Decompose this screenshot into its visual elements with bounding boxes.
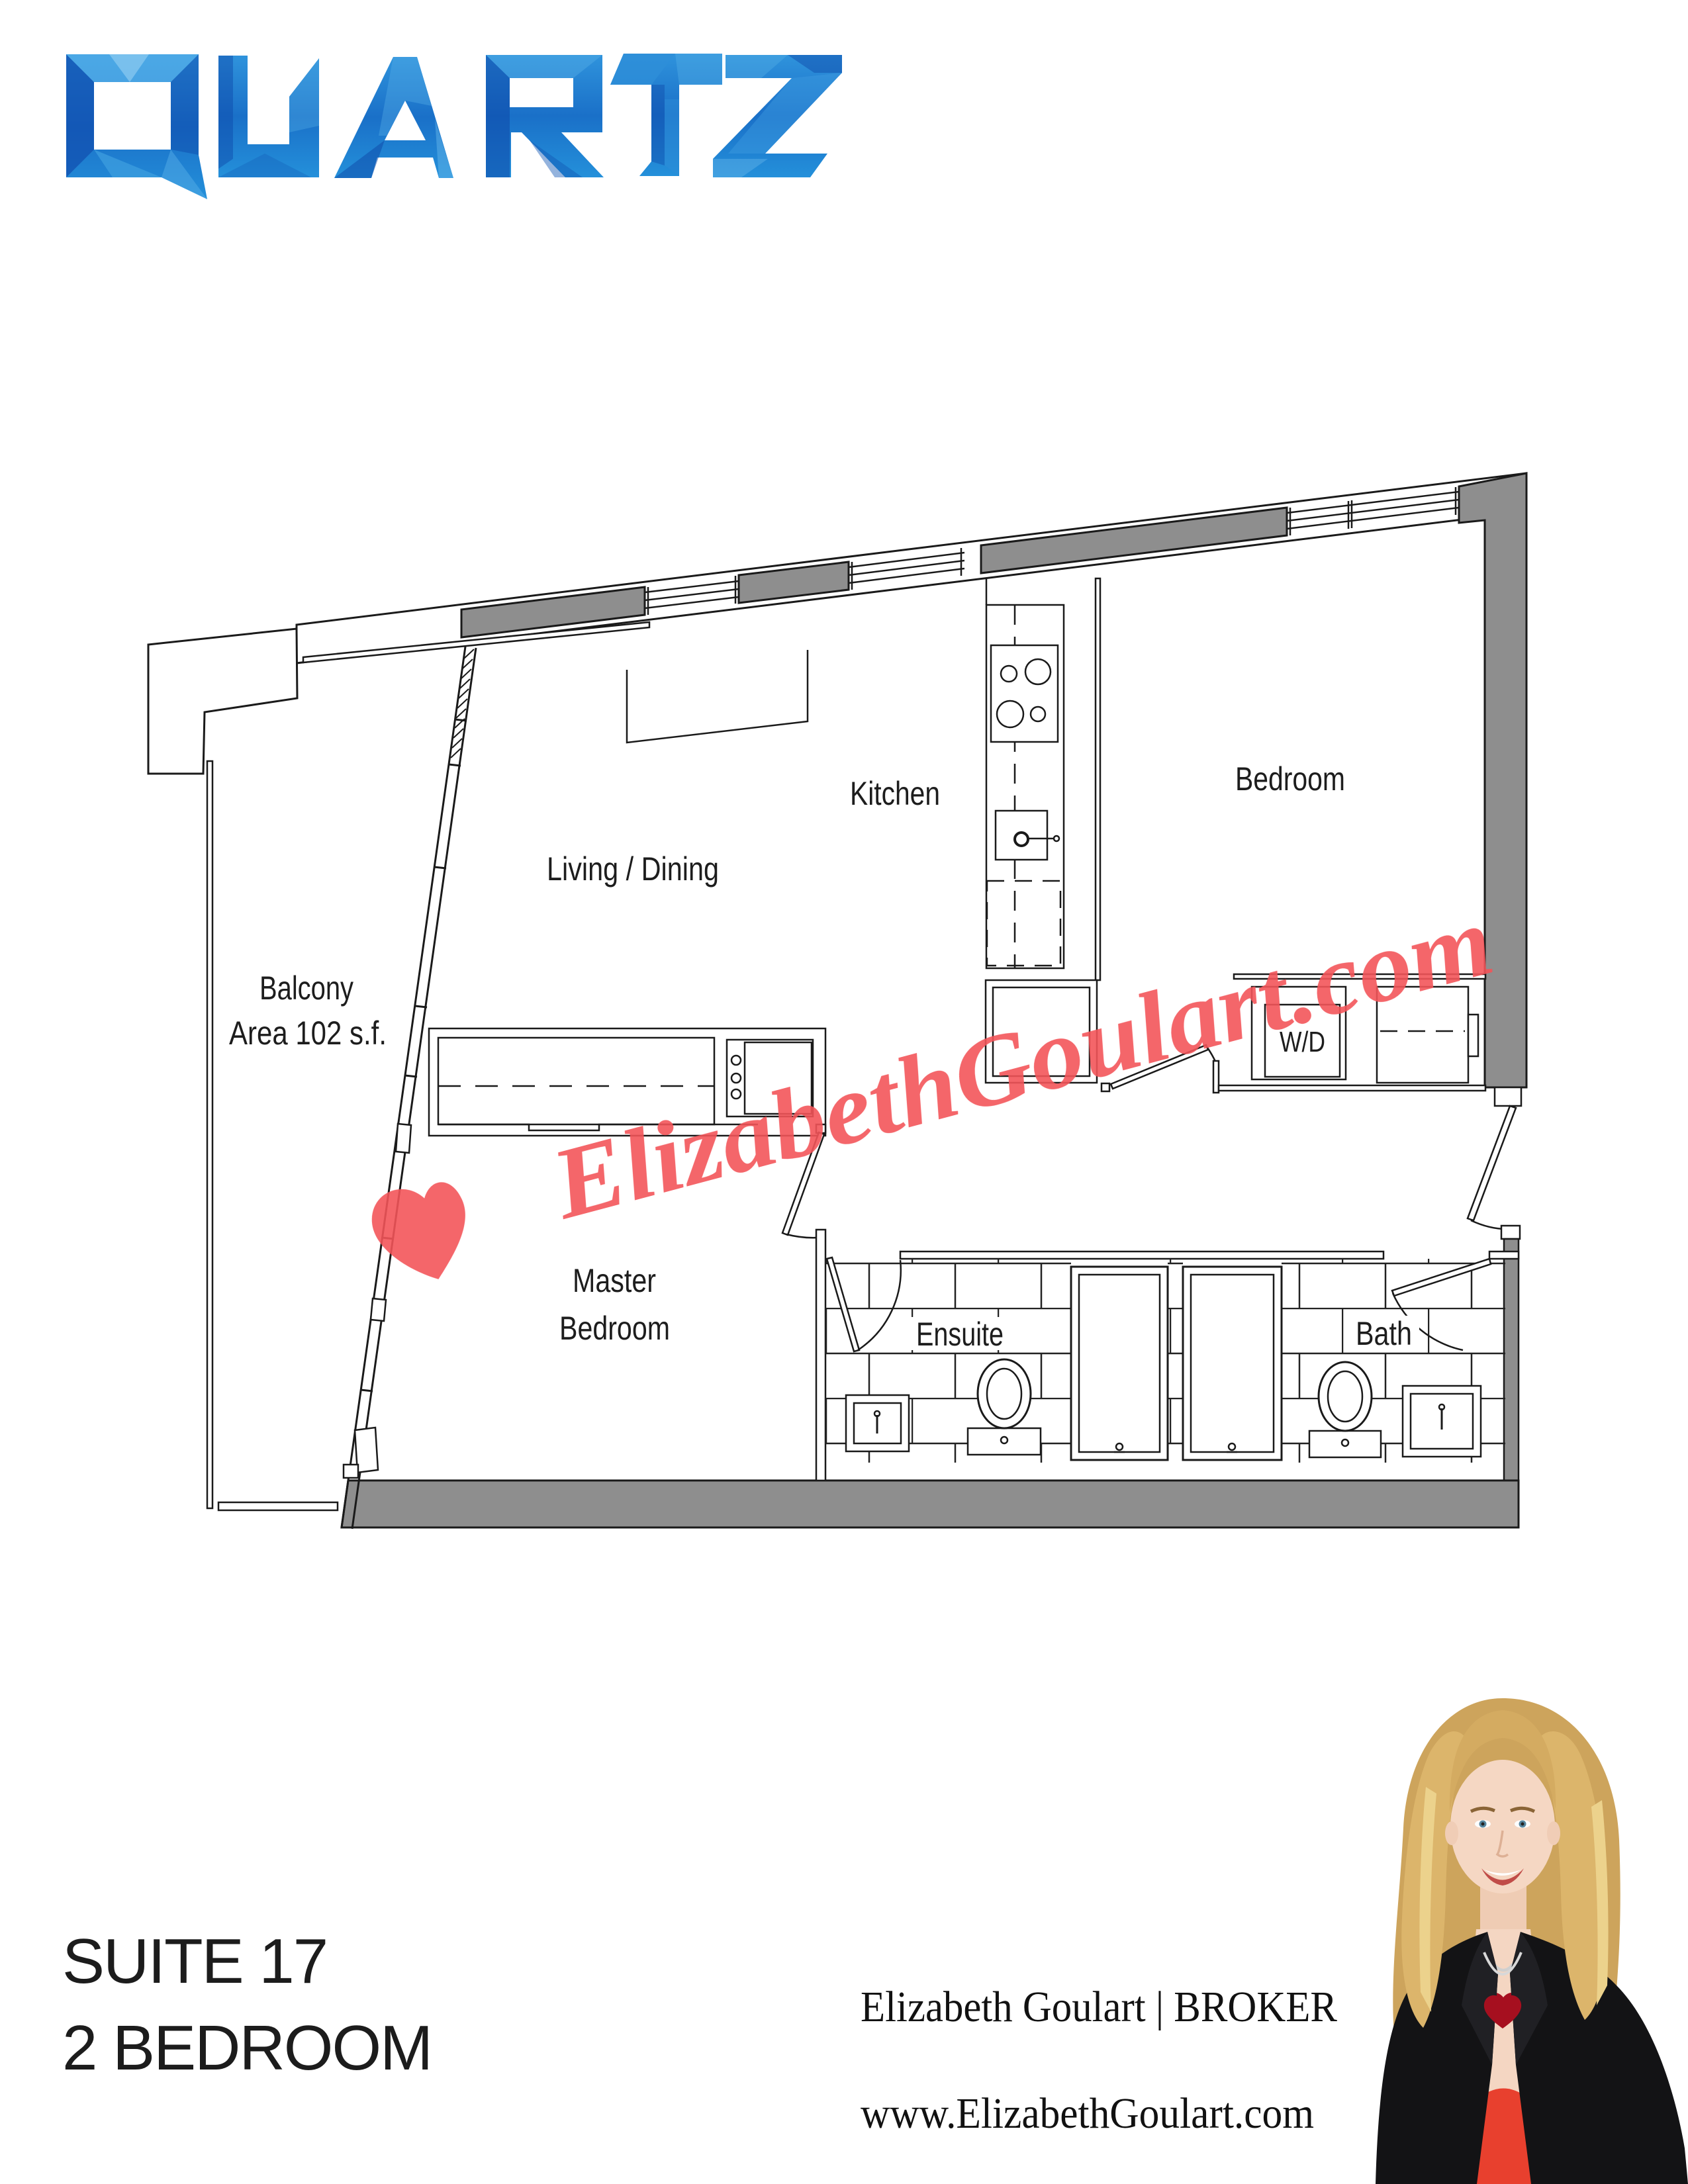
svg-text:Ensuite: Ensuite [916,1316,1004,1353]
svg-text:Area 102 s.f.: Area 102 s.f. [229,1015,387,1052]
svg-text:www.ElizabethGoulart.com: www.ElizabethGoulart.com [861,2089,1314,2138]
svg-text:2 BEDROOM: 2 BEDROOM [62,2013,432,2083]
svg-text:Living / Dining: Living / Dining [547,850,719,887]
svg-text:Bedroom: Bedroom [1235,760,1345,797]
svg-text:SUITE 17: SUITE 17 [62,1926,327,1997]
svg-text:Balcony: Balcony [259,970,353,1007]
svg-text:Bath: Bath [1356,1315,1412,1352]
svg-text:Elizabeth Goulart | BROKER: Elizabeth Goulart | BROKER [861,1983,1337,2031]
svg-text:Bedroom: Bedroom [559,1310,670,1347]
svg-text:Master: Master [573,1262,656,1299]
svg-text:Kitchen: Kitchen [850,775,940,812]
